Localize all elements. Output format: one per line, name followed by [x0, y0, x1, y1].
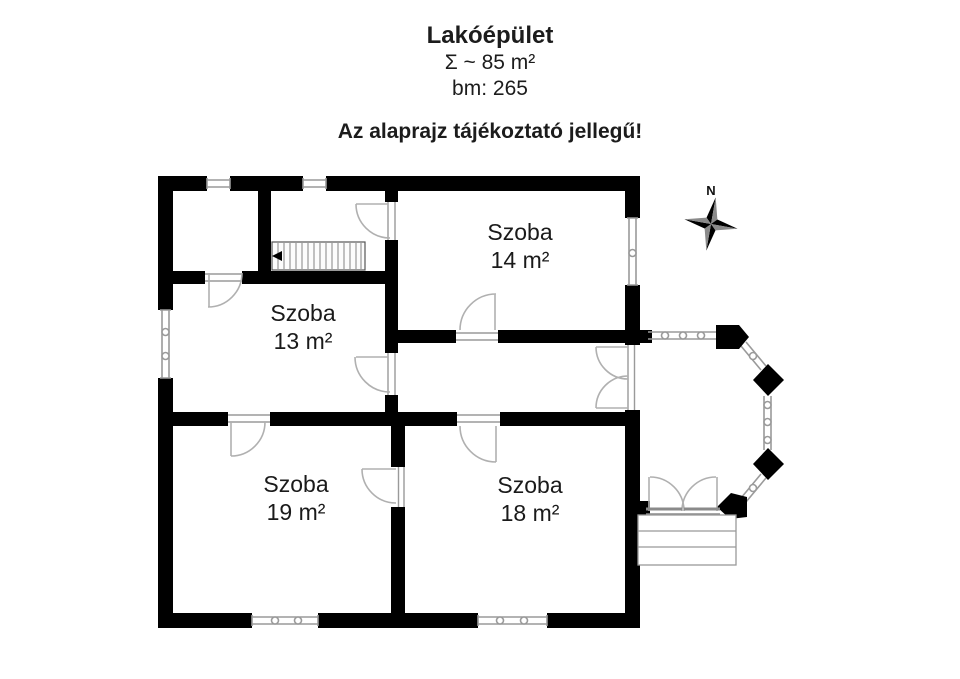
bay-windows: [648, 332, 771, 502]
stair-outline: [272, 242, 365, 270]
plan-header: Lakóépület Σ ~ 85 m² bm: 265 Az alaprajz…: [20, 22, 960, 145]
window-bottom-2: [478, 615, 547, 626]
bay-pillar-ne: [753, 364, 784, 396]
room-19-name: Szoba: [263, 471, 328, 497]
staircase: [272, 242, 365, 270]
window-bottom-1: [252, 615, 318, 626]
wall-segment: [500, 412, 640, 426]
wall-segment: [385, 330, 456, 343]
wall-segment: [158, 176, 173, 310]
total-area-label: Σ ~ 85 m²: [20, 50, 960, 76]
door-arc: [231, 422, 265, 456]
wall-segment: [625, 176, 640, 218]
door-threshold: [388, 202, 395, 240]
page-title: Lakóépület: [20, 22, 960, 50]
window-top-1: [207, 178, 230, 189]
steps-outline: [638, 515, 736, 565]
door-threshold: [628, 345, 635, 410]
door-threshold: [457, 415, 500, 422]
bm-label: bm: 265: [20, 76, 960, 102]
door-arc: [460, 294, 496, 330]
door-threshold: [205, 274, 242, 281]
wall-segment: [391, 426, 405, 467]
bay-window-northeast: [741, 342, 766, 370]
room-13-name: Szoba: [270, 300, 335, 326]
window-left: [160, 310, 171, 378]
bay-pillar-se: [753, 448, 784, 480]
veranda-bay: [648, 325, 784, 519]
double-door-arc: [596, 347, 628, 379]
room-18-name: Szoba: [497, 472, 562, 498]
wall-segment: [258, 191, 271, 272]
room-18-area: 18 m²: [501, 500, 560, 526]
door-threshold: [228, 415, 270, 422]
walls: [158, 176, 652, 628]
entrance-steps: [638, 515, 736, 565]
door-arc: [362, 469, 396, 503]
window-room14-right: [627, 218, 638, 285]
floorplan-page: Lakóépület Σ ~ 85 m² bm: 265 Az alaprajz…: [0, 0, 960, 679]
wall-segment: [230, 176, 303, 191]
compass-north-label: N: [706, 183, 715, 198]
wall-segment: [158, 271, 205, 284]
room-13-area: 13 m²: [274, 328, 333, 354]
room-19-area: 19 m²: [267, 499, 326, 525]
room-14-name: Szoba: [487, 219, 552, 245]
window-top-2: [303, 178, 326, 189]
wall-segment: [270, 412, 457, 426]
double-door-arc: [596, 376, 628, 408]
wall-segment: [242, 271, 398, 284]
door-threshold: [399, 467, 405, 507]
bay-pillar-nw: [716, 325, 749, 349]
wall-segment: [498, 330, 652, 343]
door-threshold: [456, 333, 498, 340]
entrance-door-arc: [682, 477, 717, 511]
compass-rose: N: [680, 183, 743, 255]
bay-window-north: [648, 332, 717, 339]
wall-segment: [158, 613, 252, 628]
wall-segment: [326, 176, 640, 191]
wall-segment: [391, 507, 405, 628]
wall-segment: [158, 412, 228, 426]
door-threshold: [388, 353, 395, 395]
disclaimer-note: Az alaprajz tájékoztató jellegű!: [20, 119, 960, 145]
entrance-threshold: [646, 509, 720, 514]
room-14-area: 14 m²: [491, 247, 550, 273]
wall-segment: [385, 191, 398, 202]
door-arc: [208, 273, 242, 307]
entrance-door-arc: [649, 477, 684, 511]
door-arc: [355, 357, 390, 392]
door-arc: [460, 426, 496, 462]
compass-star: [680, 193, 743, 256]
bay-window-east: [764, 396, 771, 450]
door-arc: [356, 204, 390, 238]
